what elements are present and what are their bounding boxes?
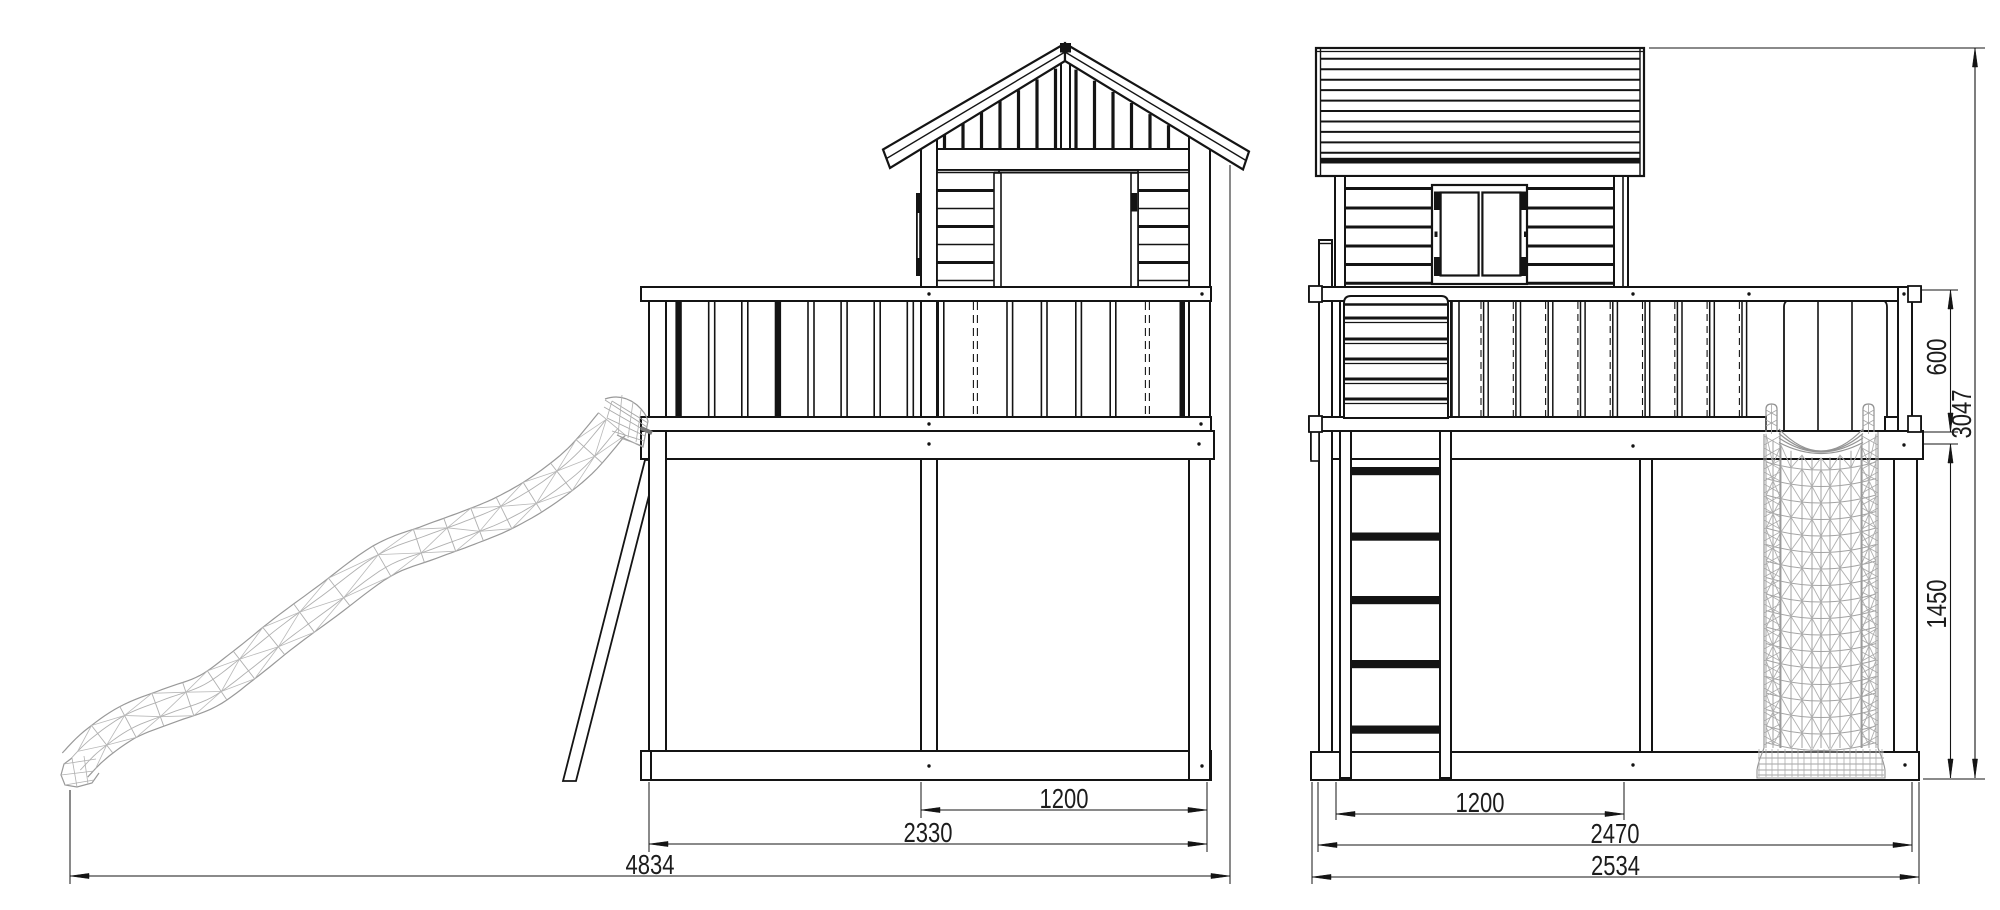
svg-text:1200: 1200 xyxy=(1456,787,1505,818)
svg-text:2470: 2470 xyxy=(1591,818,1640,849)
svg-text:4834: 4834 xyxy=(626,849,675,880)
svg-text:1200: 1200 xyxy=(1040,783,1089,814)
svg-text:1450: 1450 xyxy=(1921,580,1952,629)
svg-text:3047: 3047 xyxy=(1946,390,1977,439)
svg-text:2534: 2534 xyxy=(1591,850,1640,881)
svg-text:600: 600 xyxy=(1921,339,1952,376)
svg-text:2330: 2330 xyxy=(904,817,953,848)
